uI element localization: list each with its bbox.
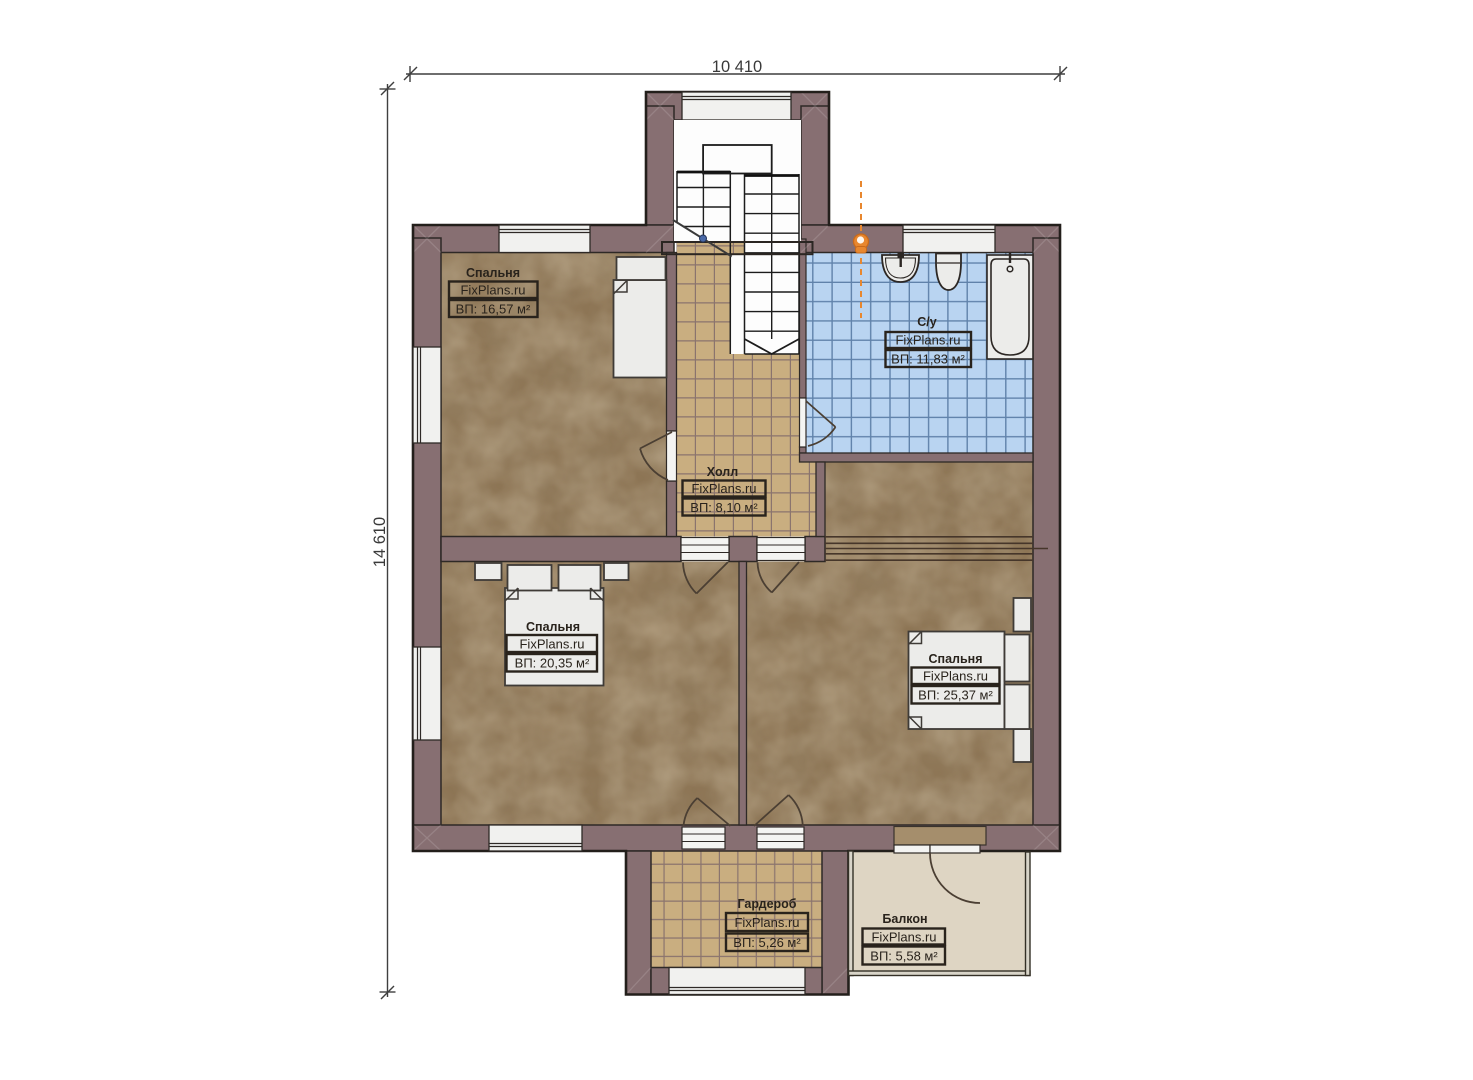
svg-text:Балкон: Балкон: [882, 912, 927, 926]
svg-text:Гардероб: Гардероб: [737, 897, 796, 911]
svg-text:ВП: 25,37 м²: ВП: 25,37 м²: [918, 688, 993, 703]
svg-text:ВП: 5,58 м²: ВП: 5,58 м²: [870, 949, 938, 964]
svg-text:ВП: 16,57 м²: ВП: 16,57 м²: [456, 302, 531, 317]
svg-text:ВП: 11,83 м²: ВП: 11,83 м²: [891, 352, 965, 367]
svg-text:Спальня: Спальня: [526, 620, 580, 634]
svg-text:FixPlans.ru: FixPlans.ru: [734, 915, 799, 930]
svg-text:10 410: 10 410: [712, 58, 762, 76]
svg-text:Спальня: Спальня: [466, 266, 520, 280]
svg-text:Спальня: Спальня: [929, 652, 983, 666]
svg-text:С/у: С/у: [917, 315, 937, 329]
svg-text:ВП: 20,35 м²: ВП: 20,35 м²: [515, 656, 590, 671]
svg-text:ВП: 8,10 м²: ВП: 8,10 м²: [690, 500, 758, 515]
svg-text:FixPlans.ru: FixPlans.ru: [519, 637, 584, 652]
svg-text:ВП: 5,26 м²: ВП: 5,26 м²: [733, 935, 801, 950]
svg-text:14 610: 14 610: [371, 517, 389, 567]
svg-text:FixPlans.ru: FixPlans.ru: [691, 481, 756, 496]
svg-text:FixPlans.ru: FixPlans.ru: [895, 333, 960, 348]
svg-text:FixPlans.ru: FixPlans.ru: [923, 669, 988, 684]
svg-text:FixPlans.ru: FixPlans.ru: [871, 930, 936, 945]
svg-text:Холл: Холл: [707, 465, 738, 479]
svg-text:FixPlans.ru: FixPlans.ru: [460, 283, 525, 298]
